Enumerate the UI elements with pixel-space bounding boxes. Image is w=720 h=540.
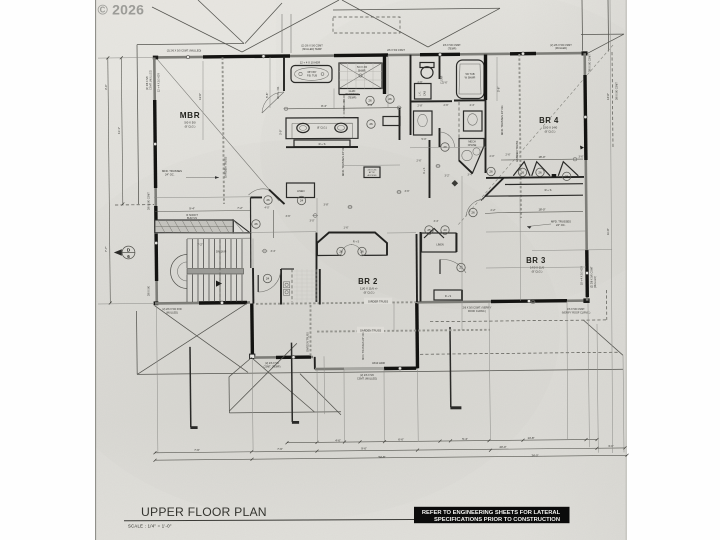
svg-text:3'-4": 3'-4" [271,250,276,253]
svg-text:MFD. TRUSSES 24" OC.: MFD. TRUSSES 24" OC. [362,332,365,360]
svg-text:3'-4": 3'-4" [468,174,473,177]
svg-text:26: 26 [368,99,372,103]
svg-text:25: 25 [427,228,431,232]
svg-text:3'-8": 3'-8" [324,204,329,207]
svg-text:MBR: MBR [180,111,200,120]
svg-text:2'-0": 2'-0" [490,155,495,158]
svg-text:26: 26 [388,97,392,101]
svg-text:4'-4": 4'-4" [470,104,475,107]
svg-text:12 + 4 X 10 HDR: 12 + 4 X 10 HDR [158,73,161,92]
svg-text:2/0 X 2/6: 2/0 X 2/6 [368,169,378,171]
svg-text:1'-6": 1'-6" [344,227,349,230]
svg-text:3'-6": 3'-6" [405,190,410,193]
svg-text:R + S: R + S [545,188,552,192]
svg-text:11'-8": 11'-8" [606,228,610,235]
svg-text:4X10 HDR: 4X10 HDR [372,361,385,365]
svg-text:3'-0": 3'-0" [608,444,614,448]
svg-text:24: 24 [266,277,270,281]
svg-text:2'-6": 2'-6" [418,81,423,84]
svg-text:6'-6": 6'-6" [398,438,404,442]
svg-text:MFD. TRUSSES 24" OC.: MFD. TRUSSES 24" OC. [500,105,504,135]
svg-text:7'-7": 7'-7" [104,246,108,252]
svg-text:2'-6": 2'-6" [506,154,511,157]
svg-text:18'-0": 18'-0" [538,207,545,211]
svg-text:5'-6": 5'-6" [265,93,269,98]
svg-text:26: 26 [489,170,493,174]
svg-text:GARDEN TRUSS: GARDEN TRUSS [307,332,310,352]
svg-text:© 2026: © 2026 [98,2,145,18]
svg-text:1'-6": 1'-6" [443,82,448,85]
svg-text:14'-8": 14'-8" [527,436,534,440]
svg-text:MFD. TRUSSES 24" OC.: MFD. TRUSSES 24" OC. [341,146,345,176]
svg-text:3'-4": 3'-4" [434,220,439,223]
svg-text:2'-8": 2'-8" [418,105,423,108]
svg-text:26: 26 [471,211,475,215]
svg-text:6: 6 [127,254,130,259]
svg-text:3'-6": 3'-6" [579,156,584,159]
svg-text:R + S: R + S [445,295,452,298]
svg-text:4'-0": 4'-0" [265,206,270,209]
svg-text:(9' CLG.): (9' CLG.) [532,270,543,274]
svg-text:ATTIC: ATTIC [369,171,376,174]
svg-text:2/6 X 5/0 CSMT: 2/6 X 5/0 CSMT [148,192,151,210]
svg-text:L.K.: L.K. [419,91,422,96]
svg-text:R + S: R + S [423,167,426,174]
svg-text:2'-6": 2'-6" [417,160,422,163]
svg-text:SHWR.: SHWR. [358,69,367,72]
svg-text:7'-2": 7'-2" [197,243,203,247]
svg-text:(MULLED): (MULLED) [594,276,597,288]
svg-text:BR 3: BR 3 [526,256,546,265]
svg-text:23: 23 [459,266,463,270]
svg-text:(TEMP): (TEMP) [348,96,357,99]
svg-text:(MULLED): (MULLED) [555,47,567,50]
svg-text:9'-6": 9'-6" [361,446,367,450]
svg-text:9'-4": 9'-4" [189,206,195,210]
svg-text:R + S: R + S [353,240,360,243]
svg-text:CHASE: CHASE [468,144,477,147]
svg-text:3/6 X 5/0 CSMT: 3/6 X 5/0 CSMT [589,54,592,72]
svg-text:5'-6": 5'-6" [497,87,501,92]
svg-text:CSMT. (MULLED): CSMT. (MULLED) [357,377,377,380]
svg-text:ROOF CLRNC.): ROOF CLRNC.) [468,310,486,313]
svg-text:14'-8": 14'-8" [606,93,610,100]
svg-text:SCALE : 1/4" = 1'-0": SCALE : 1/4" = 1'-0" [128,524,172,529]
svg-text:11/0 X 11/6 +/-: 11/0 X 11/6 +/- [360,287,378,291]
svg-text:24: 24 [300,199,304,203]
svg-text:5/0 X 5/0: 5/0 X 5/0 [184,121,196,125]
svg-text:8'-4": 8'-4" [321,104,327,108]
svg-text:DN 16 R: DN 16 R [216,250,226,254]
svg-text:BR 2: BR 2 [358,277,378,286]
svg-text:W SHWR: W SHWR [465,76,476,79]
svg-text:20'-0": 20'-0" [499,445,506,449]
svg-text:GARDEN TRUSS: GARDEN TRUSS [224,156,228,178]
svg-text:3'-0": 3'-0" [279,130,283,135]
svg-text:2'-2": 2'-2" [491,209,496,212]
svg-text:(MULLED): (MULLED) [166,311,178,314]
svg-text:(9' CLG.): (9' CLG.) [364,291,375,295]
svg-text:(9' CLG.): (9' CLG.) [185,125,196,129]
svg-text:13'-6": 13'-6" [198,93,202,100]
svg-text:CSMT. (TEMP): CSMT. (TEMP) [264,365,281,368]
svg-text:SPECIFICATIONS PRIOR TO CONSTR: SPECIFICATIONS PRIOR TO CONSTRUCTION [434,517,560,523]
svg-text:3'-2": 3'-2" [445,175,450,178]
svg-text:24" OC.: 24" OC. [165,172,175,176]
svg-text:3'-6": 3'-6" [286,215,291,218]
svg-text:ACCESS: ACCESS [368,174,378,177]
svg-text:5'-4": 5'-4" [462,437,468,441]
svg-text:UPPER FLOOR PLAN: UPPER FLOOR PLAN [141,505,267,519]
svg-text:26: 26 [565,175,569,179]
svg-text:BR 4: BR 4 [539,116,559,125]
svg-text:MFD. TRUSSES: MFD. TRUSSES [551,220,571,224]
svg-text:(TEMP): (TEMP) [448,48,457,51]
svg-text:R + S: R + S [319,142,326,146]
svg-text:2'-6": 2'-6" [444,104,449,107]
svg-text:18'-0": 18'-0" [538,155,545,159]
svg-text:CAB: CAB [424,91,427,96]
svg-text:54'-8": 54'-8" [378,455,385,459]
svg-text:(MULLED) TEMP: (MULLED) TEMP [302,48,322,51]
svg-text:66"X36": 66"X36" [307,71,316,74]
svg-text:26: 26 [369,122,373,126]
svg-text:REFER TO ENGINEERING SHEETS FO: REFER TO ENGINEERING SHEETS FOR LATERAL [422,510,561,516]
svg-text:26: 26 [538,171,542,175]
svg-text:GIRDER TRUSS: GIRDER TRUSS [368,299,388,303]
svg-text:3/0 BL. DR.: 3/0 BL. DR. [277,86,280,99]
svg-text:15/0 X 14/0: 15/0 X 14/0 [543,126,558,130]
svg-text:2/6 X 5/0 CSMT: 2/6 X 5/0 CSMT [387,49,405,52]
svg-text:24" OC.: 24" OC. [556,223,566,227]
svg-text:11'-1": 11'-1" [117,127,121,134]
svg-text:3/6 X 5/0 CSMT: 3/6 X 5/0 CSMT [616,82,619,100]
svg-text:26: 26 [360,250,364,254]
svg-text:(VERIFY ROOF CLRNC.): (VERIFY ROOF CLRNC.) [562,312,591,315]
svg-text:7'-2": 7'-2" [237,206,243,210]
svg-text:3'-6": 3'-6" [104,84,108,90]
svg-text:CSMT. (MULLED): CSMT. (MULLED) [149,70,152,90]
svg-text:3'-0": 3'-0" [310,220,315,223]
svg-text:(9' CLG.): (9' CLG.) [545,130,556,134]
svg-text:5'-0": 5'-0" [422,138,427,141]
svg-text:GARDEN TRUSS: GARDEN TRUSS [360,328,382,332]
svg-text:23: 23 [443,228,447,232]
svg-text:4'-6": 4'-6" [335,438,341,442]
svg-text:2/6 X 5/0: 2/6 X 5/0 [148,285,151,296]
svg-text:12 + 4 X 10 HDR: 12 + 4 X 10 HDR [300,60,320,64]
svg-text:LINEN: LINEN [436,244,444,247]
svg-text:26: 26 [254,222,258,226]
svg-text:P.B. TUB: P.B. TUB [307,75,317,78]
svg-text:26: 26 [266,198,270,202]
svg-text:7'-6": 7'-6" [277,447,283,451]
svg-text:26: 26 [521,171,525,175]
svg-text:18 + 4 X 10 HDR: 18 + 4 X 10 HDR [581,266,584,285]
svg-text:(9' CLG.): (9' CLG.) [317,127,327,130]
svg-text:26: 26 [339,250,343,254]
svg-text:GARDEN TRUSS: GARDEN TRUSS [515,140,519,162]
svg-text:34'-0": 34'-0" [531,453,538,457]
svg-text:MFD. TRUSSES: MFD. TRUSSES [162,169,182,173]
svg-text:7'-6": 7'-6" [194,448,200,452]
svg-text:(2) 2/6 X 5/0 CSMT. (MULLED): (2) 2/6 X 5/0 CSMT. (MULLED) [167,50,202,53]
svg-text:LINEN: LINEN [297,190,305,193]
svg-text:3/0 BL. DR.: 3/0 BL. DR. [343,98,346,111]
